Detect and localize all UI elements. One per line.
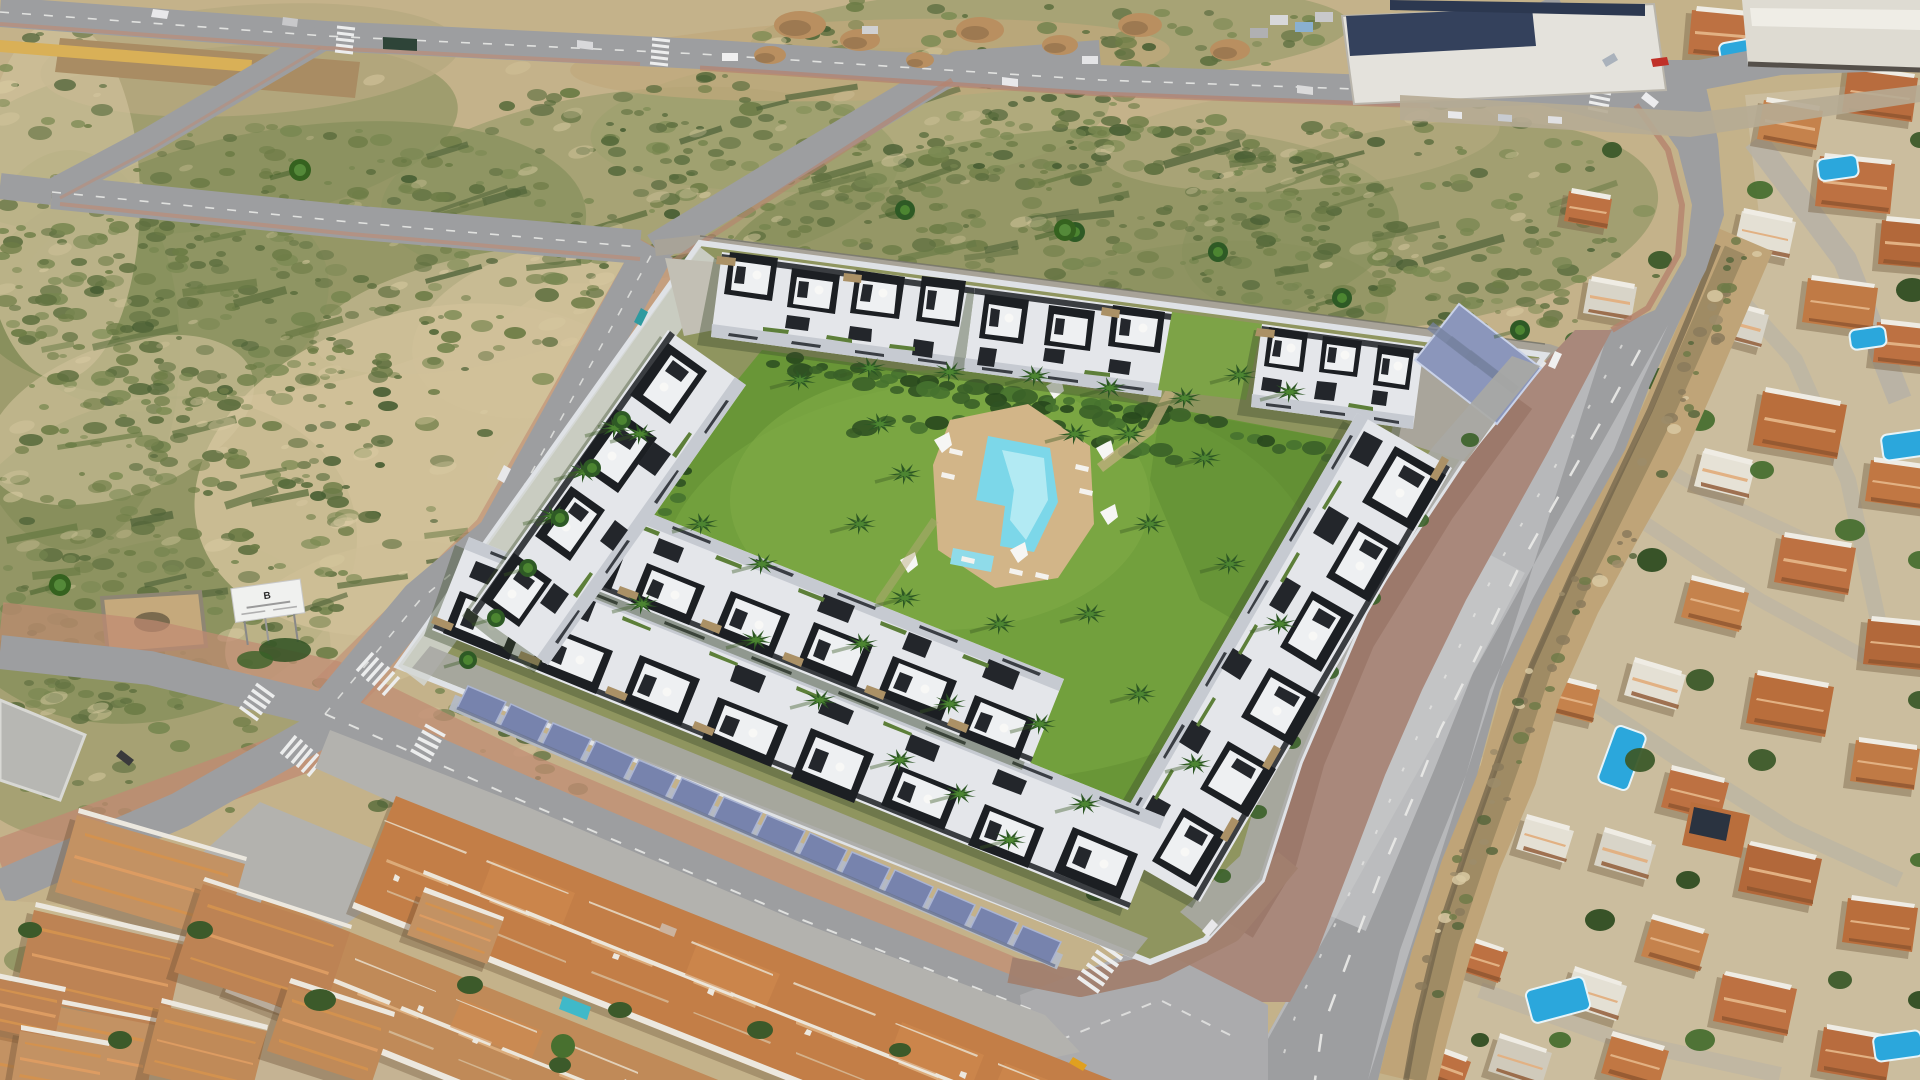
svg-text:B: B (263, 590, 272, 602)
